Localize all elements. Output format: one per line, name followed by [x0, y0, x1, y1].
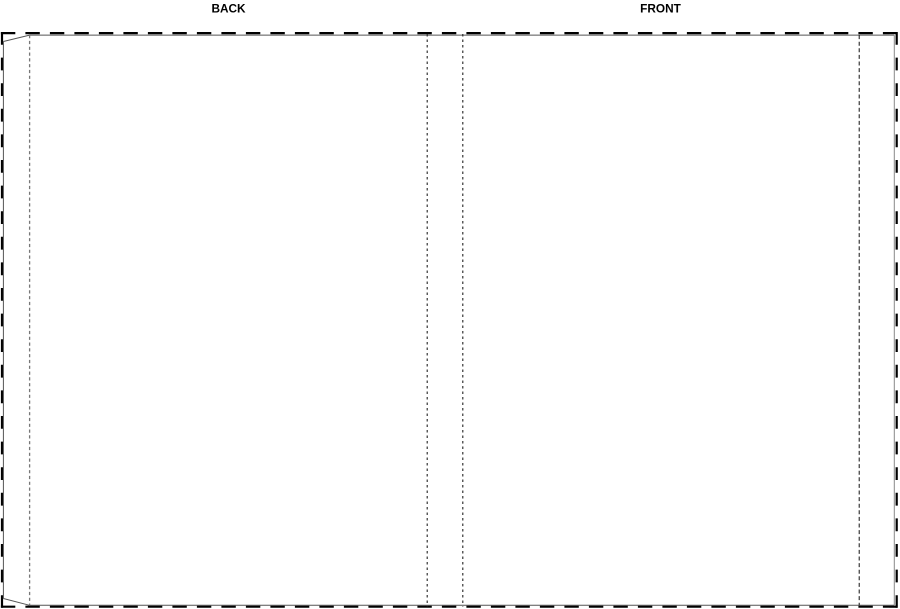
svg-text:BACK: BACK [211, 2, 246, 16]
svg-text:FRONT: FRONT [640, 2, 681, 16]
